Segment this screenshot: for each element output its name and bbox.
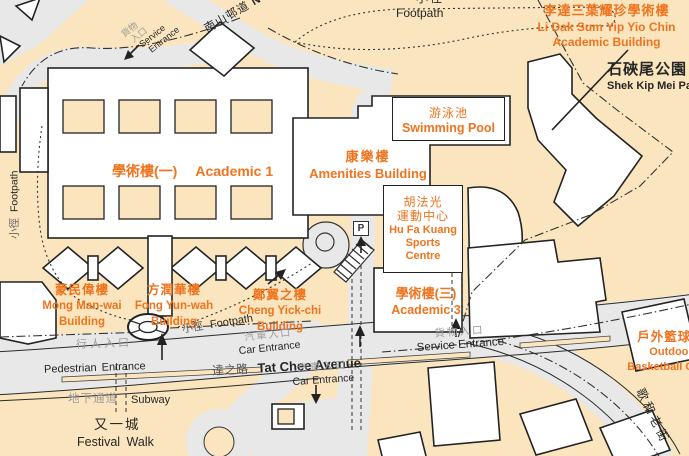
label-hu-fa-kuang-sports-centre: 胡法光 運動中心 Hu Fa Kuang Sports Centre (383, 185, 463, 273)
label-swimming-pool: 游泳池 Swimming Pool (392, 97, 505, 141)
label-amenities-building: 康樂樓 Amenities Building (300, 149, 436, 182)
label-pedestrian-entrance-zh: 行人入口 (76, 336, 132, 352)
label-subway-en: Subway (131, 393, 170, 407)
label-festival-walk-zh: 又一城 (94, 416, 141, 433)
label-festival-walk-en: Festival Walk (77, 434, 154, 450)
label-outdoor-basketball-court: 戶外籃球場 Outdoor Basketball Court (616, 330, 689, 375)
label-li-dak-sum-academic-building: 李達三葉耀珍學術樓 Li Dak Sum Yip Yio Chin Academ… (524, 3, 689, 50)
campus-map: 小徑 Footpath 南山邨道 N 貨物 入口 Service Entranc… (0, 0, 689, 456)
label-footpath-top-en: Footpath (396, 6, 443, 21)
label-shek-kip-mei-park: 石硤尾公園 Shek Kip Mei Park (607, 60, 689, 93)
map-canvas (0, 0, 689, 456)
label-academic-1: 學術樓(一) Academic 1 (112, 163, 273, 181)
label-car-entrance-lower: 汽車入口 Car Entrance (289, 359, 357, 390)
label-footpath-left: 小徑 Footpath (8, 149, 21, 261)
label-academic-3: 學術樓(三) Academic 3 (386, 285, 466, 319)
label-subway-zh: 地下通道 (68, 392, 118, 407)
parking-sign-icon: P (353, 221, 369, 236)
label-mong-man-wai-building: 蒙民偉樓 Mong Man-wai Building (36, 282, 128, 330)
